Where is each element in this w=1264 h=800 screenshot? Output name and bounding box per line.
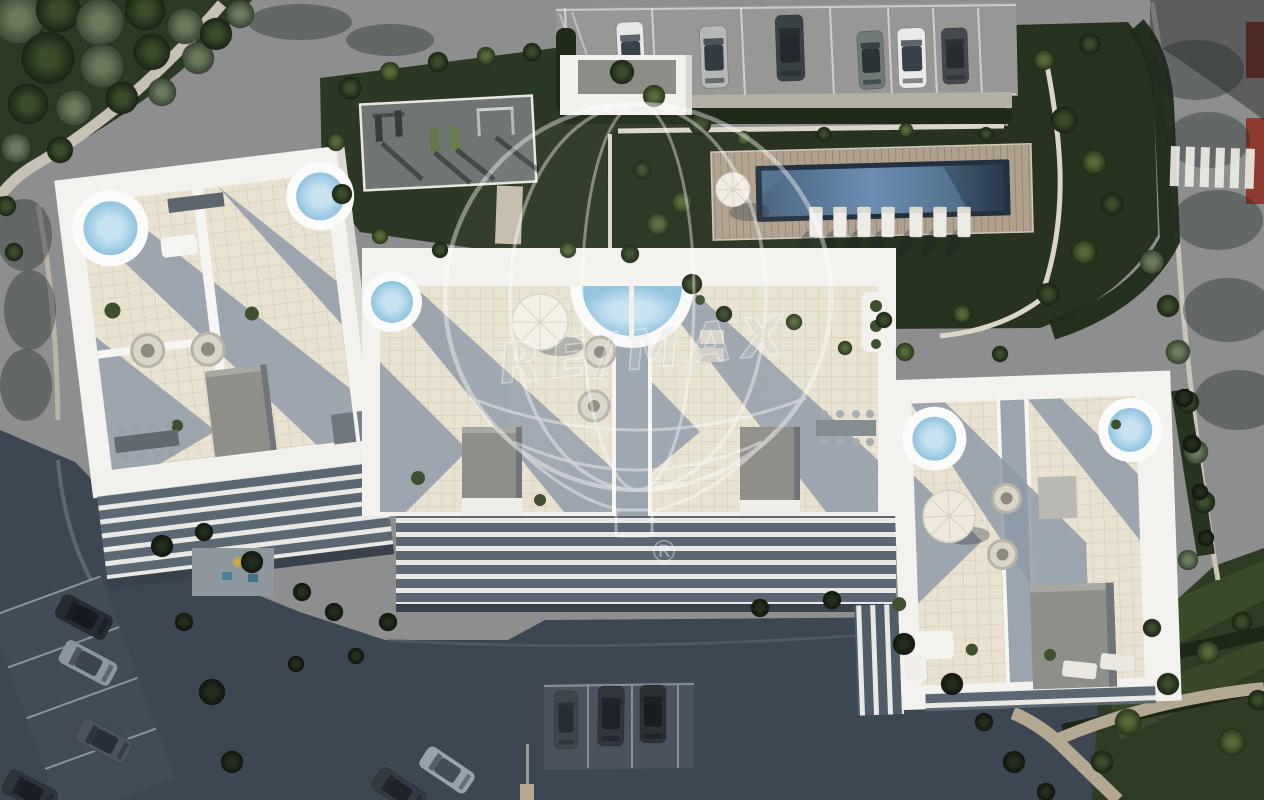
tree: [325, 603, 343, 621]
car-cabin: [602, 704, 620, 730]
car-cabin: [644, 702, 662, 726]
building-left: [54, 145, 398, 590]
tree: [1166, 340, 1190, 364]
crosswalk-stripe: [1245, 149, 1255, 189]
tree: [1198, 530, 1214, 546]
tree: [148, 78, 176, 106]
lounger-pillow: [858, 207, 871, 213]
building-right: [846, 371, 1181, 716]
car-rear-glass: [903, 78, 923, 83]
car-windshield: [602, 698, 621, 704]
car-cabin: [559, 708, 574, 732]
tree: [893, 633, 915, 655]
tree: [348, 648, 364, 664]
tree: [167, 8, 203, 44]
tree: [241, 551, 263, 573]
car-rear-glass: [602, 736, 620, 741]
tree: [1232, 612, 1252, 632]
roof-edge-shade: [686, 55, 692, 115]
tree: [1115, 709, 1141, 735]
tree: [1197, 641, 1219, 663]
dining-table: [816, 420, 876, 436]
stepped-balconies: [396, 516, 896, 604]
tree: [953, 305, 971, 323]
roof-box: [1038, 476, 1077, 519]
tree: [1178, 550, 1198, 570]
tree: [379, 613, 397, 631]
tree: [1248, 690, 1264, 710]
car-rear-glass: [559, 740, 574, 745]
car-cabin: [780, 34, 801, 62]
lounger-pillow: [910, 207, 923, 213]
crosswalk-stripe: [1170, 146, 1180, 186]
car-windshield: [945, 39, 964, 45]
tree: [151, 535, 173, 557]
car-windshield: [558, 703, 574, 709]
balcony-base: [396, 604, 896, 612]
patio-chair: [222, 572, 232, 580]
tree: [372, 228, 388, 244]
tree: [610, 60, 634, 84]
tree: [477, 47, 495, 65]
car-cabin: [946, 44, 965, 68]
tree: [876, 312, 892, 328]
tree: [1, 133, 31, 163]
car-windshield: [644, 697, 663, 703]
tree: [56, 90, 92, 126]
tree: [1183, 435, 1201, 453]
tree: [428, 52, 448, 72]
tree: [332, 184, 352, 204]
tree: [339, 77, 361, 99]
tree: [1157, 295, 1179, 317]
tree: [941, 673, 963, 695]
tree: [8, 84, 48, 124]
tree: [221, 751, 243, 773]
tree: [199, 679, 225, 705]
tree: [1101, 193, 1123, 215]
tree: [817, 127, 831, 141]
tree: [823, 591, 841, 609]
tree: [5, 243, 23, 261]
registered-symbol: ®: [649, 535, 679, 570]
planter: [871, 339, 881, 349]
tree: [106, 82, 138, 114]
tree: [899, 123, 913, 137]
tree: [975, 713, 993, 731]
aerial-render: RE/MAX ®: [0, 0, 1264, 800]
tree: [288, 656, 304, 672]
tree: [1143, 619, 1161, 637]
car-rear-glass: [781, 70, 801, 76]
tree: [1037, 783, 1055, 800]
car-cabin: [861, 48, 880, 73]
tree: [979, 127, 993, 141]
car-windshield: [861, 42, 880, 49]
crosswalk-stripe: [1215, 148, 1225, 188]
car: [555, 691, 578, 749]
tree: [1091, 751, 1113, 773]
courtyard-patio: [192, 548, 274, 596]
car: [941, 28, 969, 85]
tree: [432, 242, 448, 258]
car-cabin: [704, 44, 724, 71]
car-windshield: [779, 28, 800, 35]
crosswalk-stripe: [1185, 147, 1195, 187]
lounger-pillow: [958, 207, 971, 213]
tree: [992, 346, 1008, 362]
car: [897, 28, 927, 89]
tree: [200, 18, 232, 50]
tree: [1037, 283, 1059, 305]
lamp-base: [520, 784, 534, 800]
aerial-site-plan: RE/MAX ®: [0, 0, 1264, 800]
tree: [195, 523, 213, 541]
tree: [838, 341, 852, 355]
lounger-pillow: [834, 207, 847, 213]
planter: [870, 300, 882, 312]
tree: [226, 0, 254, 28]
tree: [134, 34, 170, 70]
car-windshield: [620, 34, 640, 41]
tree: [47, 137, 73, 163]
tree: [1157, 673, 1179, 695]
tree: [327, 133, 345, 151]
tree: [22, 32, 74, 84]
tree: [1140, 250, 1164, 274]
car: [699, 26, 728, 89]
car-rear-glass: [863, 79, 881, 85]
car: [597, 686, 624, 746]
tree: [1003, 751, 1025, 773]
car-cabin: [902, 46, 923, 72]
tree: [175, 613, 193, 631]
tree: [896, 343, 914, 361]
sofa: [904, 655, 927, 682]
tree: [523, 43, 541, 61]
tree: [1219, 729, 1245, 755]
car-rear-glass: [644, 734, 662, 739]
jacuzzi-water: [371, 281, 413, 323]
planter: [534, 494, 546, 506]
car-windshield: [901, 40, 922, 47]
car-rear-glass: [705, 78, 724, 84]
tree: [80, 44, 124, 88]
car: [857, 30, 886, 89]
crosswalk-stripe: [1230, 148, 1240, 188]
tree: [1051, 107, 1077, 133]
planter: [411, 471, 425, 485]
crosswalk-stripe: [1200, 147, 1210, 187]
car-windshield: [703, 38, 723, 45]
patio-pad: [192, 548, 274, 596]
tree: [751, 599, 769, 617]
tree: [1175, 389, 1193, 407]
tree: [1072, 240, 1096, 264]
tree: [1082, 150, 1106, 174]
car: [640, 685, 666, 743]
stepped-balconies-west: [854, 604, 904, 716]
tree: [1192, 484, 1208, 500]
lamp-post: [526, 744, 529, 786]
tree: [380, 62, 400, 82]
tree: [0, 196, 16, 216]
patio-chair: [248, 574, 258, 582]
tree: [1034, 50, 1054, 70]
tree: [293, 583, 311, 601]
tree: [1080, 34, 1100, 54]
lounger-pillow: [882, 207, 895, 213]
car-rear-glass: [947, 75, 965, 80]
car: [775, 15, 805, 82]
lounger-pillow: [934, 207, 947, 213]
tree: [76, 0, 124, 46]
